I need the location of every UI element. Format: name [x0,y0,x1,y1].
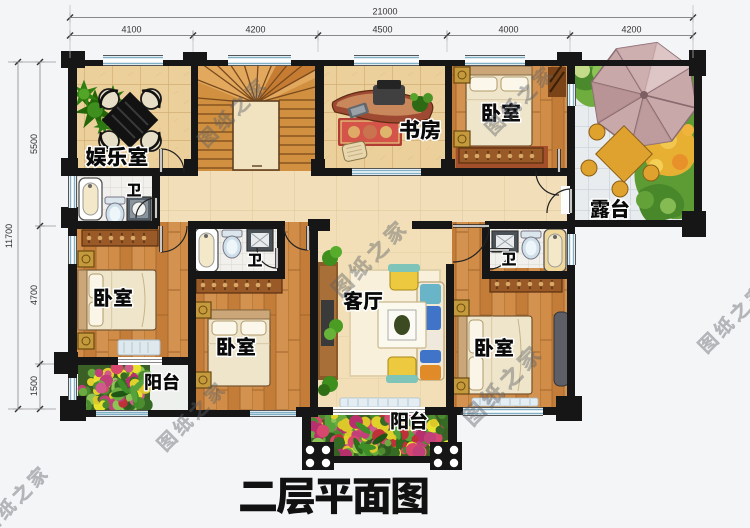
svg-text:4200: 4200 [621,25,641,35]
svg-text:4500: 4500 [372,25,392,35]
svg-text:4700: 4700 [29,285,39,305]
svg-text:11700: 11700 [4,224,14,248]
svg-text:4000: 4000 [498,25,518,35]
svg-text:4100: 4100 [121,25,141,35]
svg-text:21000: 21000 [372,7,397,17]
svg-text:1500: 1500 [29,376,39,396]
svg-text:4200: 4200 [245,25,265,35]
svg-text:5500: 5500 [29,134,39,154]
